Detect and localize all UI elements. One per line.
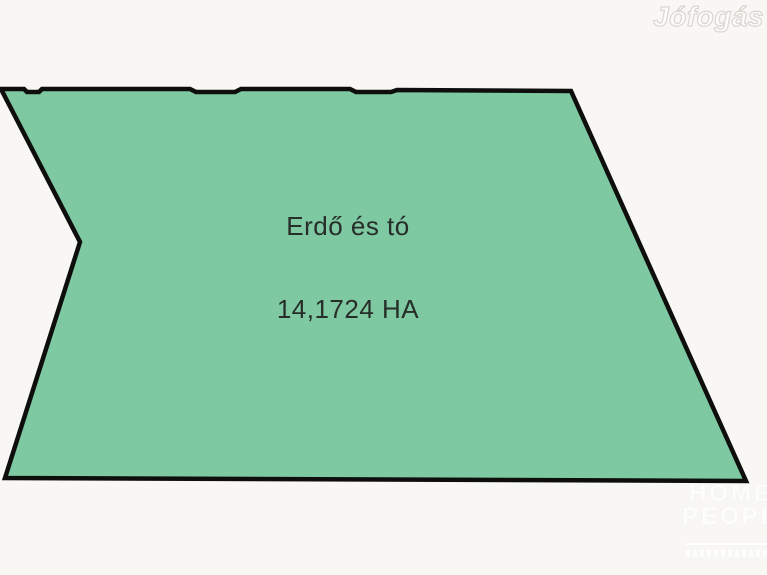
agency-watermark-divider	[686, 543, 767, 545]
agency-watermark-line2: PEOPLE	[682, 505, 767, 528]
agency-watermark-line1: HOME	[682, 483, 767, 505]
parcel-map	[0, 0, 767, 575]
agency-watermark-tagline	[686, 550, 767, 557]
listing-photo: Erdő és tó 14,1724 HA Jófogás HOME PEOPL…	[0, 0, 767, 575]
agency-watermark: HOME PEOPLE	[682, 483, 767, 557]
parcel-polygon	[1, 89, 746, 481]
jofogas-watermark: Jófogás	[653, 1, 764, 33]
